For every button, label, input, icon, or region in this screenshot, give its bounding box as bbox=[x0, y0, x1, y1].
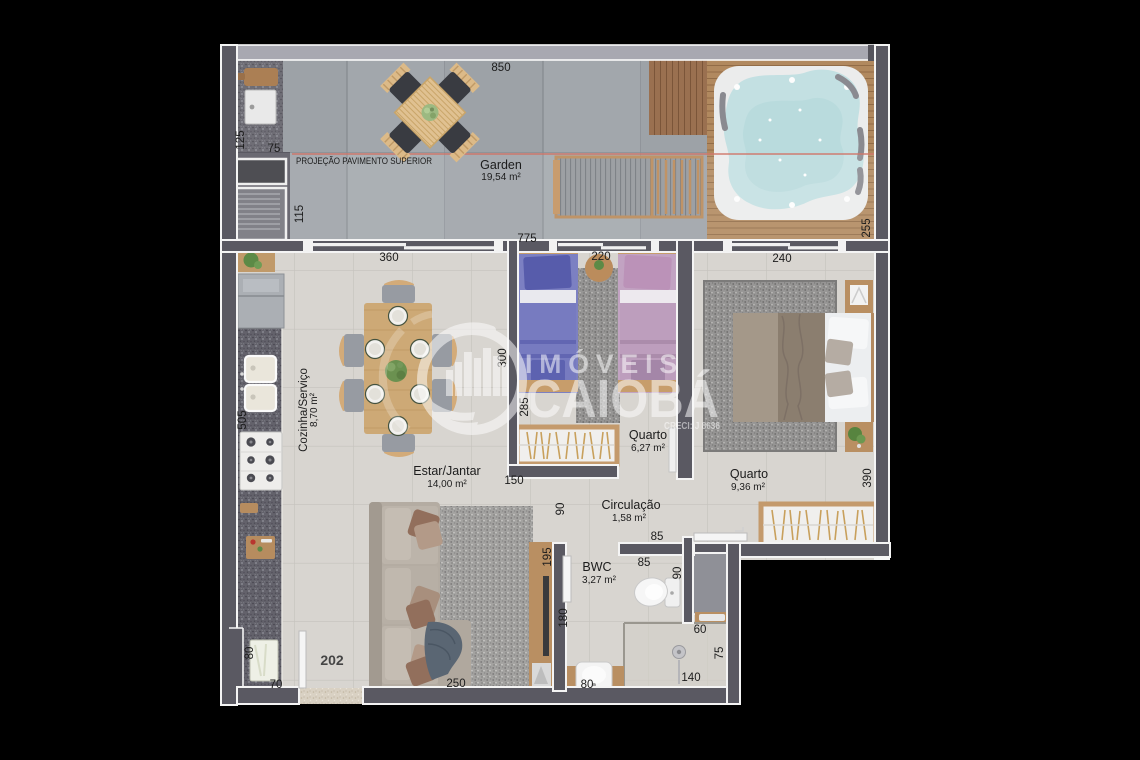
svg-text:850: 850 bbox=[491, 62, 510, 74]
svg-text:Estar/Jantar: Estar/Jantar bbox=[413, 464, 480, 478]
svg-text:14,00 m²: 14,00 m² bbox=[427, 479, 467, 490]
svg-text:75: 75 bbox=[714, 647, 726, 660]
svg-text:Quarto: Quarto bbox=[730, 467, 768, 481]
svg-text:1,58 m²: 1,58 m² bbox=[612, 513, 647, 524]
svg-text:180: 180 bbox=[558, 608, 570, 627]
svg-text:PROJEÇÃO PAVIMENTO SUPERIOR: PROJEÇÃO PAVIMENTO SUPERIOR bbox=[296, 156, 432, 166]
svg-text:CRECI: J 8636: CRECI: J 8636 bbox=[664, 420, 720, 432]
svg-text:150: 150 bbox=[504, 475, 523, 487]
svg-text:505: 505 bbox=[237, 410, 249, 429]
svg-text:3,27 m²: 3,27 m² bbox=[582, 575, 617, 586]
svg-text:360: 360 bbox=[379, 252, 398, 264]
svg-text:80: 80 bbox=[581, 679, 594, 691]
svg-text:390: 390 bbox=[862, 468, 874, 487]
svg-text:85: 85 bbox=[651, 531, 664, 543]
svg-text:6,27 m²: 6,27 m² bbox=[631, 443, 666, 454]
svg-text:80: 80 bbox=[244, 647, 256, 660]
svg-text:140: 140 bbox=[681, 672, 700, 684]
svg-text:250: 250 bbox=[446, 678, 465, 690]
svg-text:775: 775 bbox=[517, 233, 536, 245]
svg-text:9,36 m²: 9,36 m² bbox=[731, 482, 766, 493]
svg-text:220: 220 bbox=[591, 251, 610, 263]
svg-text:85: 85 bbox=[638, 557, 651, 569]
svg-text:Circulação: Circulação bbox=[601, 498, 660, 512]
svg-text:8,70 m²: 8,70 m² bbox=[309, 392, 320, 427]
svg-text:125: 125 bbox=[235, 130, 247, 149]
svg-text:195: 195 bbox=[542, 547, 554, 566]
svg-text:202: 202 bbox=[320, 652, 344, 668]
svg-text:90: 90 bbox=[555, 503, 567, 516]
svg-text:115: 115 bbox=[294, 205, 306, 223]
svg-text:240: 240 bbox=[772, 253, 791, 265]
svg-text:70: 70 bbox=[270, 679, 283, 691]
svg-text:90: 90 bbox=[672, 567, 684, 580]
svg-text:60: 60 bbox=[694, 624, 707, 636]
svg-text:Quarto: Quarto bbox=[629, 428, 667, 442]
svg-text:255: 255 bbox=[861, 218, 873, 237]
svg-text:BWC: BWC bbox=[582, 560, 611, 574]
svg-text:75: 75 bbox=[268, 143, 281, 155]
svg-text:19,54 m²: 19,54 m² bbox=[481, 172, 521, 183]
svg-text:Garden: Garden bbox=[480, 158, 522, 172]
